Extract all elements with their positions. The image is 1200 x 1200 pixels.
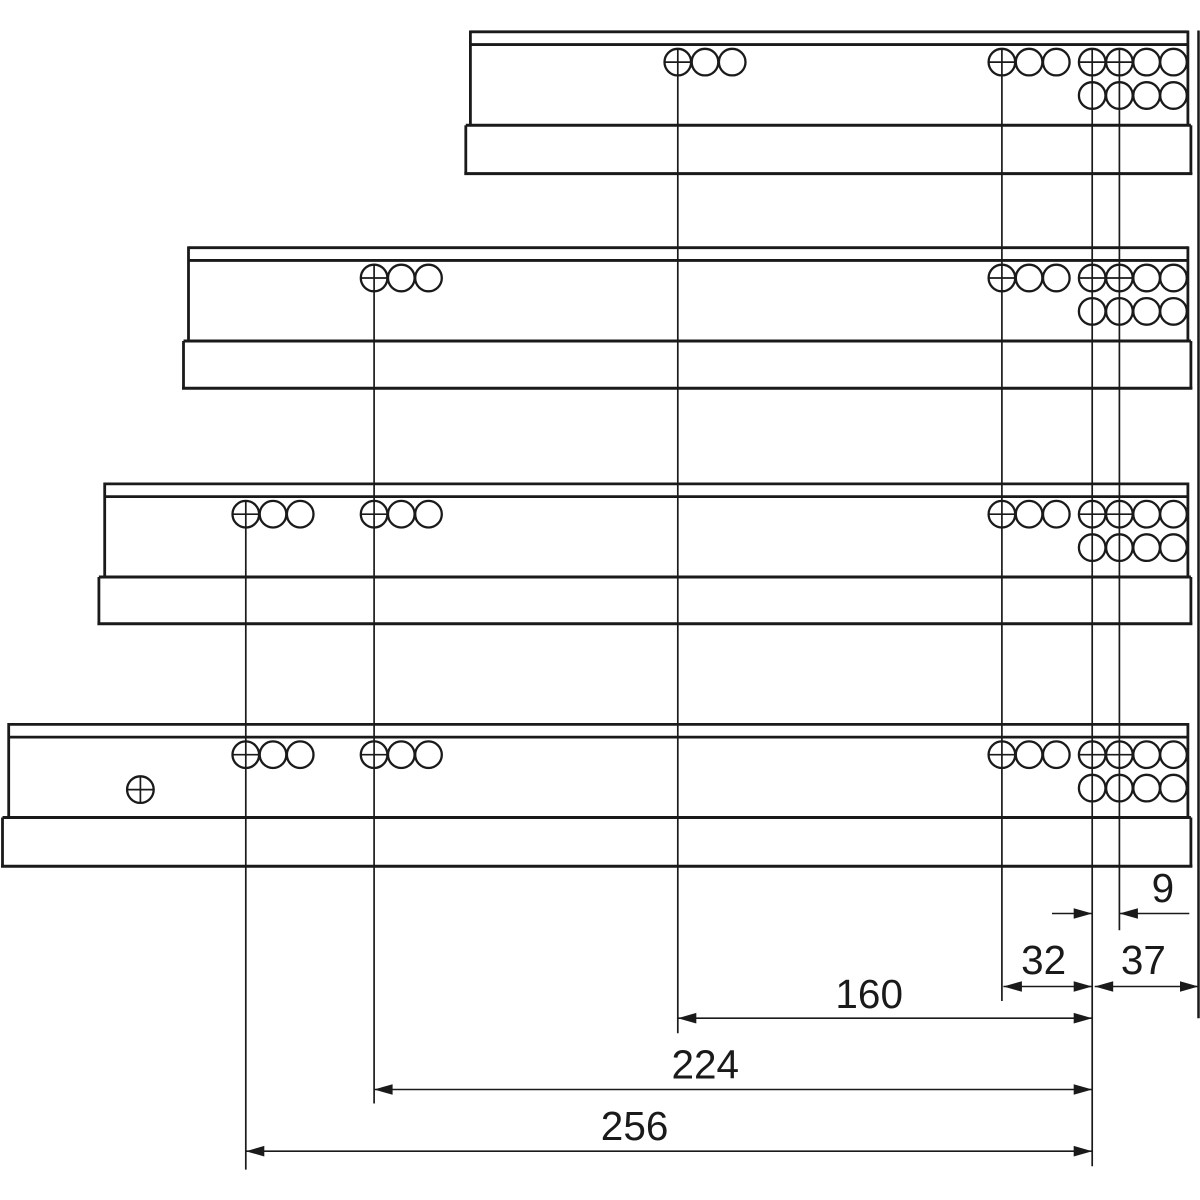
svg-text:32: 32: [1021, 937, 1066, 983]
svg-text:224: 224: [672, 1042, 740, 1088]
svg-text:9: 9: [1152, 865, 1175, 911]
svg-text:256: 256: [601, 1103, 669, 1149]
svg-text:37: 37: [1121, 937, 1166, 983]
svg-text:160: 160: [835, 971, 903, 1017]
